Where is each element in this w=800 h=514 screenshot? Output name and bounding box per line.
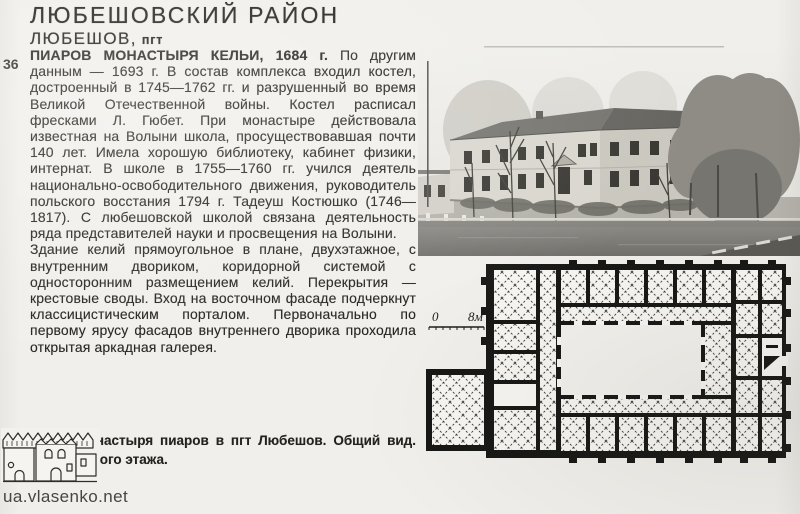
courtyard: [561, 325, 701, 395]
pole: [427, 61, 429, 207]
article-body: ПИАРОВ МОНАСТЫРЯ КЕЛЬИ, 1684 г. По други…: [30, 47, 416, 355]
monastery-photo-drawing: [418, 45, 800, 256]
district-title: ЛЮБЕШОВСКИЙ РАЙОН: [30, 2, 339, 28]
castle-logo-drawing: [1, 424, 105, 484]
article-header: ЛЮБЕШОВСКИЙ РАЙОН ЛЮБЕШОВ,пгт: [30, 2, 339, 50]
paragraph-1: ПИАРОВ МОНАСТЫРЯ КЕЛЬИ, 1684 г. По други…: [30, 47, 416, 241]
paragraph-1-text: По другим данным — 1693 г. В состав комп…: [30, 47, 416, 241]
monastery-photo: [418, 45, 800, 256]
road: [418, 218, 800, 256]
town-status: пгт: [142, 33, 163, 47]
scale-zero-label: 0: [432, 309, 439, 324]
scanned-book-page: { "header": { "title": "ЛЮБЕШОВСКИЙ РАЙО…: [0, 0, 800, 514]
article-lead: ПИАРОВ МОНАСТЫРЯ КЕЛЬИ, 1684 г.: [30, 47, 328, 63]
watermark-url: ua.vlasenko.net: [3, 487, 128, 507]
page-number: 36: [3, 56, 19, 72]
floor-plan-drawing: 0 8м: [424, 259, 796, 466]
town-name: ЛЮБЕШОВ,: [30, 29, 137, 48]
paragraph-2: Здание келий прямоугольное в плане, двух…: [30, 241, 416, 354]
castle-logo-icon: [1, 424, 105, 484]
plan-scale-bar: 0 8м: [429, 309, 484, 330]
floor-plan: 0 8м: [424, 259, 796, 466]
scale-8m-label: 8м: [468, 309, 483, 324]
